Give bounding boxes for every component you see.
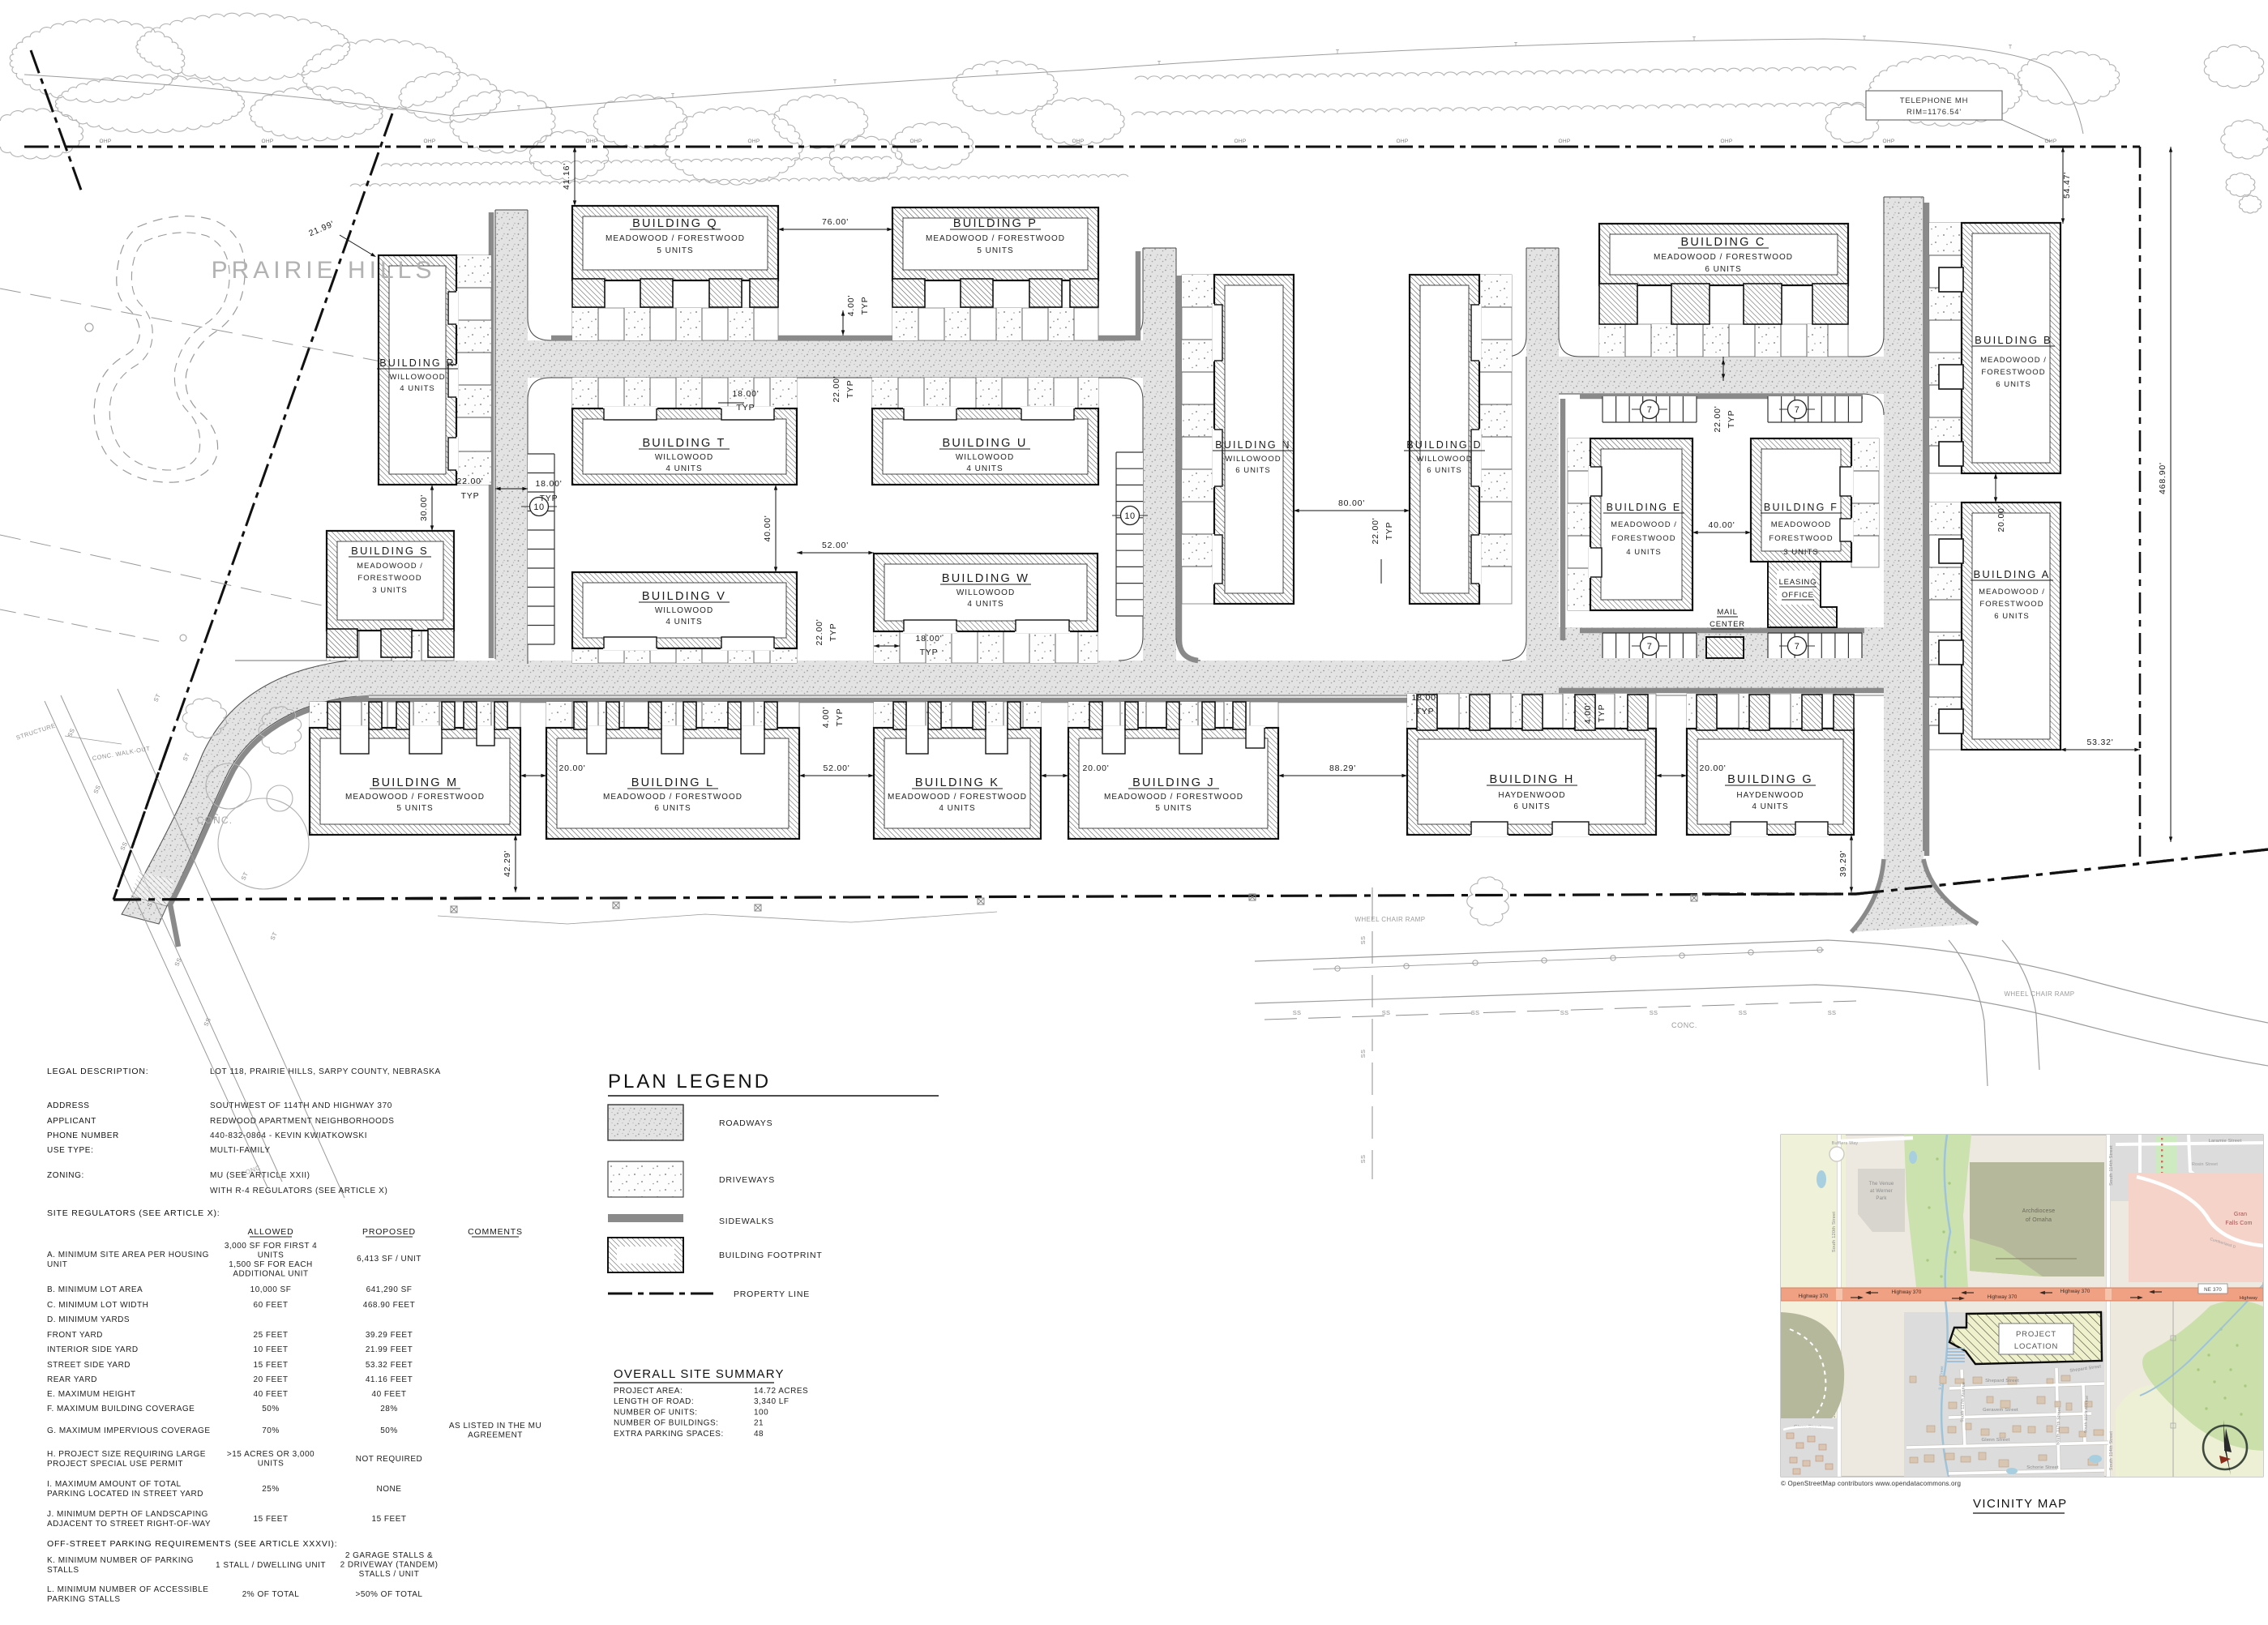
svg-text:PROJECT SPECIAL USE PERMIT: PROJECT SPECIAL USE PERMIT — [47, 1460, 183, 1469]
svg-text:30.00': 30.00' — [419, 494, 429, 521]
svg-text:PARKING STALLS: PARKING STALLS — [47, 1595, 121, 1604]
svg-text:PROPOSED: PROPOSED — [362, 1227, 416, 1237]
svg-text:22.00': 22.00' — [456, 477, 483, 486]
svg-text:39.29 FEET: 39.29 FEET — [366, 1331, 413, 1340]
svg-text:T: T — [517, 105, 521, 111]
svg-text:T: T — [1158, 61, 1162, 66]
svg-text:10: 10 — [533, 502, 544, 512]
svg-text:FORESTWOOD: FORESTWOOD — [1979, 600, 2043, 609]
svg-text:PHONE NUMBER: PHONE NUMBER — [47, 1131, 119, 1140]
svg-text:DRIVEWAYS: DRIVEWAYS — [719, 1175, 775, 1185]
svg-text:BUILDING W: BUILDING W — [942, 572, 1029, 585]
svg-text:BUILDING E: BUILDING E — [1607, 502, 1682, 513]
svg-text:88.29': 88.29' — [1329, 763, 1356, 773]
svg-text:OHP: OHP — [100, 139, 112, 144]
svg-text:18.00': 18.00' — [535, 479, 562, 489]
svg-text:4.00': 4.00' — [821, 707, 831, 728]
svg-text:Highway 370: Highway 370 — [1799, 1294, 1829, 1299]
svg-text:10 FEET: 10 FEET — [254, 1345, 289, 1354]
svg-text:3 UNITS: 3 UNITS — [1783, 548, 1818, 557]
svg-text:WILLOWOOD: WILLOWOOD — [956, 588, 1015, 597]
svg-text:STALLS: STALLS — [47, 1566, 79, 1575]
svg-text:SOUTHWEST OF 114TH AND HIGHWAY: SOUTHWEST OF 114TH AND HIGHWAY 370 — [210, 1101, 392, 1110]
svg-text:BUILDING K: BUILDING K — [915, 776, 999, 789]
svg-text:MEADOWOOD / FORESTWOOD: MEADOWOOD / FORESTWOOD — [926, 234, 1065, 243]
svg-text:25%: 25% — [262, 1485, 280, 1494]
svg-text:5 UNITS: 5 UNITS — [977, 246, 1013, 255]
svg-text:22.00': 22.00' — [1713, 405, 1722, 432]
svg-text:MEADOWOOD / FORESTWOOD: MEADOWOOD / FORESTWOOD — [345, 793, 485, 802]
svg-text:TYP: TYP — [835, 708, 845, 727]
svg-text:7: 7 — [1647, 405, 1653, 415]
svg-text:BUILDING L: BUILDING L — [631, 776, 715, 789]
svg-text:MEADOWOOD / FORESTWOOD: MEADOWOOD / FORESTWOOD — [606, 234, 745, 243]
svg-text:South 114th Street: South 114th Street — [2109, 1431, 2114, 1470]
svg-text:BUILDING N: BUILDING N — [1215, 439, 1291, 451]
svg-text:REDWOOD APARTMENT NEIGHBORHOOD: REDWOOD APARTMENT NEIGHBORHOODS — [210, 1117, 395, 1126]
svg-text:20.00': 20.00' — [1996, 505, 2006, 532]
svg-text:Glenn Street: Glenn Street — [1982, 1438, 2010, 1443]
svg-text:K. MINIMUM NUMBER OF PARKING: K. MINIMUM NUMBER OF PARKING — [47, 1556, 194, 1565]
svg-text:100: 100 — [754, 1408, 768, 1417]
svg-text:15 FEET: 15 FEET — [372, 1515, 407, 1524]
svg-text:20.00': 20.00' — [1082, 763, 1109, 773]
svg-text:EXTRA PARKING SPACES:: EXTRA PARKING SPACES: — [614, 1430, 724, 1439]
svg-text:HAYDENWOOD: HAYDENWOOD — [1498, 791, 1565, 800]
svg-text:468.90 FEET: 468.90 FEET — [363, 1301, 415, 1310]
svg-text:ALLOWED: ALLOWED — [248, 1227, 294, 1237]
svg-text:MEADOWOOD /: MEADOWOOD / — [1979, 588, 2045, 597]
svg-text:6 UNITS: 6 UNITS — [1513, 802, 1550, 811]
svg-text:T: T — [995, 71, 999, 76]
svg-text:BUILDING F: BUILDING F — [1764, 502, 1838, 513]
svg-text:Shepard Street: Shepard Street — [1985, 1379, 2019, 1383]
svg-text:SS: SS — [1828, 1009, 1837, 1016]
svg-text:OHP: OHP — [1397, 139, 1409, 144]
svg-text:BUILDING P: BUILDING P — [953, 217, 1038, 230]
svg-text:41.16 FEET: 41.16 FEET — [366, 1375, 413, 1384]
svg-text:LEGAL DESCRIPTION:: LEGAL DESCRIPTION: — [47, 1067, 148, 1076]
svg-text:OHP: OHP — [1883, 139, 1895, 144]
svg-text:SS: SS — [1471, 1009, 1480, 1016]
svg-text:WILLOWOOD: WILLOWOOD — [1416, 455, 1472, 464]
svg-text:UNIT: UNIT — [47, 1260, 67, 1269]
svg-text:© OpenStreetMap contributors w: © OpenStreetMap contributors www.opendat… — [1781, 1480, 1961, 1487]
svg-text:NONE: NONE — [377, 1485, 402, 1494]
svg-text:BUILDING Q: BUILDING Q — [632, 217, 718, 230]
svg-text:Archdiocese: Archdiocese — [2022, 1208, 2056, 1214]
svg-text:ZONING:: ZONING: — [47, 1171, 84, 1180]
svg-text:TYP: TYP — [1727, 410, 1736, 429]
svg-text:4 UNITS: 4 UNITS — [665, 618, 702, 626]
svg-text:CONC.: CONC. — [1671, 1021, 1697, 1029]
svg-text:10: 10 — [1124, 511, 1135, 521]
svg-text:COMMENTS: COMMENTS — [468, 1227, 523, 1237]
svg-text:440-832-0864 - KEVIN KWIATKOWS: 440-832-0864 - KEVIN KWIATKOWSKI — [210, 1131, 367, 1140]
svg-text:T: T — [1336, 49, 1340, 55]
svg-text:28%: 28% — [380, 1405, 398, 1413]
svg-text:ADDRESS: ADDRESS — [47, 1101, 90, 1110]
svg-text:T: T — [671, 93, 675, 99]
svg-text:TYP: TYP — [540, 494, 558, 503]
svg-text:Bufflers Way: Bufflers Way — [1832, 1141, 1859, 1146]
svg-text:MEADOWOOD / FORESTWOOD: MEADOWOOD / FORESTWOOD — [1104, 793, 1243, 802]
svg-text:40 FEET: 40 FEET — [254, 1390, 289, 1399]
svg-text:MEADOWOOD /: MEADOWOOD / — [1980, 356, 2047, 365]
svg-text:40.00': 40.00' — [763, 515, 772, 541]
svg-text:42.29': 42.29' — [503, 850, 512, 877]
svg-text:OHP: OHP — [910, 139, 922, 144]
svg-text:AGREEMENT: AGREEMENT — [468, 1431, 523, 1440]
svg-text:BUILDING G: BUILDING G — [1727, 773, 1813, 786]
svg-text:TYP: TYP — [860, 297, 870, 315]
svg-text:WILLOWOOD: WILLOWOOD — [655, 453, 713, 462]
svg-text:20 FEET: 20 FEET — [254, 1375, 289, 1384]
svg-text:HAYDENWOOD: HAYDENWOOD — [1736, 791, 1804, 800]
svg-text:TYP: TYP — [920, 648, 939, 657]
svg-text:Park: Park — [1876, 1196, 1887, 1201]
svg-text:WITH R-4 REGULATORS (SEE ARTIC: WITH R-4 REGULATORS (SEE ARTICLE X) — [210, 1187, 387, 1195]
svg-text:UNITS: UNITS — [258, 1460, 285, 1469]
svg-text:6 UNITS: 6 UNITS — [1427, 466, 1461, 475]
svg-text:H. PROJECT SIZE REQUIRING LARG: H. PROJECT SIZE REQUIRING LARGE — [47, 1450, 206, 1459]
svg-text:MULTI-FAMILY: MULTI-FAMILY — [210, 1146, 271, 1155]
svg-text:FORESTWOOD: FORESTWOOD — [1611, 534, 1675, 543]
svg-text:OVERALL SITE SUMMARY: OVERALL SITE SUMMARY — [614, 1367, 785, 1381]
svg-text:NUMBER OF UNITS:: NUMBER OF UNITS: — [614, 1408, 698, 1417]
svg-text:FORESTWOOD: FORESTWOOD — [1769, 534, 1833, 543]
svg-text:TYP: TYP — [1597, 704, 1607, 723]
svg-text:6 UNITS: 6 UNITS — [654, 804, 691, 813]
svg-text:A. MINIMUM SITE AREA PER HOUSI: A. MINIMUM SITE AREA PER HOUSING — [47, 1251, 209, 1259]
svg-text:Schorie Street: Schorie Street — [2026, 1465, 2059, 1470]
svg-text:1,500 SF FOR EACH: 1,500 SF FOR EACH — [229, 1260, 313, 1269]
svg-text:D. MINIMUM YARDS: D. MINIMUM YARDS — [47, 1315, 130, 1324]
svg-text:STREET SIDE YARD: STREET SIDE YARD — [47, 1361, 131, 1370]
svg-text:4 UNITS: 4 UNITS — [1626, 548, 1661, 557]
svg-text:OHP: OHP — [2045, 139, 2057, 144]
svg-text:3,340 LF: 3,340 LF — [754, 1397, 789, 1406]
svg-text:6 UNITS: 6 UNITS — [1235, 466, 1270, 475]
svg-text:FORESTWOOD: FORESTWOOD — [1981, 368, 2045, 377]
svg-text:SS: SS — [1293, 1009, 1302, 1016]
svg-text:18.00': 18.00' — [732, 389, 759, 399]
svg-text:SS: SS — [1359, 1050, 1367, 1058]
svg-text:PLAN LEGEND: PLAN LEGEND — [608, 1071, 771, 1093]
svg-text:FRONT YARD: FRONT YARD — [47, 1331, 103, 1340]
svg-text:LOCATION: LOCATION — [2014, 1342, 2058, 1351]
svg-text:18.00': 18.00' — [915, 634, 942, 644]
svg-text:22.00': 22.00' — [1371, 517, 1380, 544]
svg-text:10,000 SF: 10,000 SF — [250, 1285, 292, 1294]
svg-text:CENTER: CENTER — [1710, 620, 1745, 629]
svg-text:20.00': 20.00' — [558, 763, 585, 773]
svg-text:OHP: OHP — [1721, 139, 1733, 144]
svg-text:4 UNITS: 4 UNITS — [665, 464, 702, 473]
svg-text:BUILDING A: BUILDING A — [1974, 568, 2051, 580]
svg-text:4 UNITS: 4 UNITS — [967, 600, 1003, 609]
svg-text:Highway: Highway — [2240, 1296, 2257, 1301]
svg-text:22.00': 22.00' — [832, 375, 841, 402]
svg-text:T: T — [1514, 42, 1518, 48]
svg-text:5 UNITS: 5 UNITS — [1155, 804, 1192, 813]
svg-text:Falls Com: Falls Com — [2225, 1221, 2252, 1226]
svg-text:53.32': 53.32' — [2086, 738, 2113, 747]
svg-text:48: 48 — [754, 1430, 764, 1439]
svg-text:Geravem Street: Geravem Street — [1983, 1408, 2018, 1413]
svg-text:G. MAXIMUM IMPERVIOUS COVERAGE: G. MAXIMUM IMPERVIOUS COVERAGE — [47, 1426, 211, 1435]
svg-text:BUILDING H: BUILDING H — [1490, 773, 1575, 786]
svg-text:6 UNITS: 6 UNITS — [1994, 612, 2029, 621]
svg-text:LENGTH OF ROAD:: LENGTH OF ROAD: — [614, 1397, 694, 1406]
svg-text:PROPERTY LINE: PROPERTY LINE — [734, 1289, 810, 1299]
svg-text:T: T — [1863, 36, 1867, 41]
svg-text:MEADOWOOD / FORESTWOOD: MEADOWOOD / FORESTWOOD — [603, 793, 742, 802]
svg-text:20.00': 20.00' — [1699, 763, 1726, 773]
svg-text:T: T — [1692, 36, 1697, 42]
svg-text:SS: SS — [1650, 1009, 1658, 1016]
svg-text:E. MAXIMUM HEIGHT: E. MAXIMUM HEIGHT — [47, 1390, 136, 1399]
svg-text:Highway 370: Highway 370 — [1892, 1289, 1922, 1295]
svg-text:50%: 50% — [380, 1426, 398, 1435]
svg-text:NUMBER OF BUILDINGS:: NUMBER OF BUILDINGS: — [614, 1419, 718, 1428]
svg-text:4 UNITS: 4 UNITS — [1752, 802, 1788, 811]
svg-text:7: 7 — [1795, 405, 1800, 415]
svg-text:PARKING LOCATED IN STREET YARD: PARKING LOCATED IN STREET YARD — [47, 1490, 203, 1499]
svg-text:40 FEET: 40 FEET — [372, 1390, 407, 1399]
svg-text:NOT REQUIRED: NOT REQUIRED — [356, 1455, 423, 1464]
svg-text:BUILDING V: BUILDING V — [642, 590, 726, 603]
svg-text:OFFICE: OFFICE — [1782, 591, 1814, 600]
svg-text:BUILDING U: BUILDING U — [943, 437, 1028, 450]
svg-text:MEADOWOOD /: MEADOWOOD / — [357, 562, 423, 571]
svg-text:AS LISTED IN THE MU: AS LISTED IN THE MU — [449, 1422, 541, 1430]
svg-text:7: 7 — [1647, 642, 1653, 652]
svg-text:ROADWAYS: ROADWAYS — [719, 1118, 773, 1128]
svg-text:WHEEL CHAIR RAMP: WHEEL CHAIR RAMP — [1354, 916, 1425, 923]
svg-text:BUILDING T: BUILDING T — [642, 437, 725, 450]
svg-text:WHEEL CHAIR RAMP: WHEEL CHAIR RAMP — [2004, 990, 2074, 998]
svg-text:Gran: Gran — [2234, 1212, 2247, 1217]
svg-text:80.00': 80.00' — [1338, 498, 1365, 508]
svg-text:L. MINIMUM NUMBER OF ACCESSIBL: L. MINIMUM NUMBER OF ACCESSIBLE — [47, 1585, 208, 1594]
svg-text:4 UNITS: 4 UNITS — [939, 804, 975, 813]
svg-text:6 UNITS: 6 UNITS — [1996, 380, 2031, 389]
svg-text:OHP: OHP — [1559, 139, 1571, 144]
svg-text:B. MINIMUM LOT AREA: B. MINIMUM LOT AREA — [47, 1285, 143, 1294]
svg-text:WILLOWOOD: WILLOWOOD — [1225, 455, 1281, 464]
svg-text:BUILDING C: BUILDING C — [1681, 236, 1766, 249]
svg-text:Highway 370: Highway 370 — [2060, 1289, 2090, 1294]
svg-text:INTERIOR SIDE YARD: INTERIOR SIDE YARD — [47, 1345, 139, 1354]
svg-text:ADDITIONAL UNIT: ADDITIONAL UNIT — [233, 1270, 308, 1279]
svg-text:at Werner: at Werner — [1870, 1189, 1893, 1194]
svg-text:52.00': 52.00' — [823, 763, 849, 773]
svg-text:>50% OF TOTAL: >50% OF TOTAL — [356, 1590, 423, 1599]
svg-text:of Omaha: of Omaha — [2026, 1217, 2052, 1223]
svg-text:TYP: TYP — [828, 623, 838, 642]
svg-text:PRAIRIE HILLS: PRAIRIE HILLS — [212, 257, 436, 284]
svg-text:OHP: OHP — [748, 139, 760, 144]
svg-text:76.00': 76.00' — [822, 217, 849, 227]
svg-text:Laramie Street: Laramie Street — [2209, 1139, 2242, 1144]
svg-text:WILLOWOOD: WILLOWOOD — [389, 373, 445, 382]
svg-text:VICINITY MAP: VICINITY MAP — [1973, 1497, 2068, 1511]
svg-text:NE 370: NE 370 — [2204, 1287, 2222, 1293]
svg-text:3 UNITS: 3 UNITS — [372, 586, 407, 595]
svg-text:T: T — [2009, 45, 2013, 50]
svg-text:APPLICANT: APPLICANT — [47, 1117, 96, 1126]
svg-text:BUILDING R: BUILDING R — [379, 357, 456, 369]
svg-text:14.72 ACRES: 14.72 ACRES — [754, 1387, 808, 1396]
svg-text:BUILDING D: BUILDING D — [1406, 439, 1483, 451]
svg-text:21.99 FEET: 21.99 FEET — [366, 1345, 413, 1354]
svg-text:TYP: TYP — [737, 403, 755, 413]
svg-text:40.00': 40.00' — [1708, 520, 1735, 530]
svg-text:OHP: OHP — [262, 139, 274, 144]
svg-text:3,000 SF FOR FIRST 4: 3,000 SF FOR FIRST 4 — [225, 1242, 317, 1251]
svg-text:STALLS / UNIT: STALLS / UNIT — [359, 1570, 420, 1579]
svg-text:ADJACENT TO STREET RIGHT-OF-WA: ADJACENT TO STREET RIGHT-OF-WAY — [47, 1520, 211, 1529]
svg-text:5 UNITS: 5 UNITS — [396, 804, 433, 813]
svg-text:2 GARAGE STALLS &: 2 GARAGE STALLS & — [345, 1551, 433, 1560]
svg-text:TYP: TYP — [845, 380, 855, 399]
svg-text:Highway 370: Highway 370 — [1988, 1294, 2018, 1300]
svg-text:54.47': 54.47' — [2062, 172, 2072, 199]
svg-text:SITE REGULATORS (SEE ARTICLE X: SITE REGULATORS (SEE ARTICLE X): — [47, 1208, 220, 1218]
svg-text:2 DRIVEWAY (TANDEM): 2 DRIVEWAY (TANDEM) — [340, 1561, 439, 1570]
svg-text:BUILDING S: BUILDING S — [351, 545, 429, 557]
svg-text:SS: SS — [1359, 1155, 1367, 1164]
svg-text:4 UNITS: 4 UNITS — [966, 464, 1003, 473]
svg-text:50%: 50% — [262, 1405, 280, 1413]
svg-text:SIDEWALKS: SIDEWALKS — [719, 1217, 774, 1226]
svg-text:6 UNITS: 6 UNITS — [1705, 265, 1741, 274]
svg-text:53.32 FEET: 53.32 FEET — [366, 1361, 413, 1370]
svg-text:South 120th Street: South 120th Street — [1832, 1212, 1837, 1252]
svg-text:LOT 118, PRAIRIE HILLS, SARPY: LOT 118, PRAIRIE HILLS, SARPY COUNTY, NE… — [210, 1067, 441, 1076]
svg-text:TYP: TYP — [461, 491, 480, 501]
svg-text:21: 21 — [754, 1419, 764, 1428]
svg-text:MU (SEE ARTICLE XXII): MU (SEE ARTICLE XXII) — [210, 1171, 310, 1180]
svg-text:MAIL: MAIL — [1717, 608, 1737, 617]
svg-text:5 UNITS: 5 UNITS — [657, 246, 693, 255]
svg-text:C. MINIMUM LOT WIDTH: C. MINIMUM LOT WIDTH — [47, 1301, 148, 1310]
svg-text:MEADOWOOD: MEADOWOOD — [1771, 520, 1831, 529]
svg-text:PROJECT AREA:: PROJECT AREA: — [614, 1387, 683, 1396]
svg-text:OHP: OHP — [1235, 139, 1247, 144]
svg-text:BUILDING FOOTPRINT: BUILDING FOOTPRINT — [719, 1251, 823, 1260]
svg-text:SS: SS — [1359, 936, 1367, 945]
svg-text:15 FEET: 15 FEET — [254, 1361, 289, 1370]
svg-text:60 FEET: 60 FEET — [254, 1301, 289, 1310]
svg-text:FORESTWOOD: FORESTWOOD — [357, 574, 422, 583]
svg-text:52.00': 52.00' — [822, 541, 849, 550]
svg-text:OHP: OHP — [424, 139, 436, 144]
svg-text:MEADOWOOD / FORESTWOOD: MEADOWOOD / FORESTWOOD — [1654, 253, 1793, 262]
svg-text:15 FEET: 15 FEET — [254, 1515, 289, 1524]
svg-text:REAR YARD: REAR YARD — [47, 1375, 97, 1384]
svg-text:MEADOWOOD /: MEADOWOOD / — [1611, 520, 1677, 529]
svg-text:4.00': 4.00' — [846, 295, 856, 316]
svg-text:18.00': 18.00' — [1411, 693, 1438, 703]
svg-text:BUILDING B: BUILDING B — [1975, 334, 2052, 346]
svg-text:OHP: OHP — [586, 139, 598, 144]
svg-text:LEASING: LEASING — [1779, 578, 1817, 587]
svg-text:70%: 70% — [262, 1426, 280, 1435]
svg-text:22.00': 22.00' — [815, 618, 824, 645]
svg-text:6,413 SF / UNIT: 6,413 SF / UNIT — [357, 1255, 422, 1264]
svg-text:F. MAXIMUM BUILDING COVERAGE: F. MAXIMUM BUILDING COVERAGE — [47, 1405, 195, 1413]
svg-text:BUILDING M: BUILDING M — [372, 776, 459, 789]
svg-text:WILLOWOOD: WILLOWOOD — [956, 453, 1014, 462]
svg-text:J. MINIMUM DEPTH OF LANDSCAPIN: J. MINIMUM DEPTH OF LANDSCAPING — [47, 1510, 208, 1519]
svg-text:SS: SS — [1739, 1009, 1748, 1016]
svg-text:The Venue: The Venue — [1869, 1182, 1894, 1187]
svg-text:7: 7 — [1795, 642, 1800, 652]
svg-text:UNITS: UNITS — [258, 1251, 285, 1260]
svg-text:SS: SS — [1382, 1009, 1391, 1016]
svg-text:>15 ACRES OR 3,000: >15 ACRES OR 3,000 — [227, 1450, 315, 1459]
svg-text:OFF-STREET PARKING REQUIREMENT: OFF-STREET PARKING REQUIREMENTS (SEE ART… — [47, 1539, 337, 1549]
svg-text:641,290 SF: 641,290 SF — [366, 1285, 413, 1294]
svg-text:TYP: TYP — [1384, 522, 1394, 541]
svg-text:MEADOWOOD / FORESTWOOD: MEADOWOOD / FORESTWOOD — [888, 793, 1027, 802]
svg-text:25 FEET: 25 FEET — [254, 1331, 289, 1340]
svg-text:RIM=1176.54': RIM=1176.54' — [1906, 108, 1962, 117]
svg-text:I. MAXIMUM AMOUNT OF TOTAL: I. MAXIMUM AMOUNT OF TOTAL — [47, 1480, 182, 1489]
svg-text:PROJECT: PROJECT — [2016, 1330, 2056, 1339]
svg-text:TYP: TYP — [1416, 707, 1435, 716]
svg-text:4.00': 4.00' — [1583, 703, 1593, 724]
svg-text:BUILDING J: BUILDING J — [1132, 776, 1215, 789]
svg-text:T: T — [833, 79, 837, 85]
svg-text:468.90': 468.90' — [2158, 462, 2167, 494]
svg-text:2% OF TOTAL: 2% OF TOTAL — [242, 1590, 300, 1599]
svg-text:4 UNITS: 4 UNITS — [400, 384, 434, 393]
svg-text:41.16': 41.16' — [562, 163, 571, 190]
svg-text:OHP: OHP — [1072, 139, 1085, 144]
svg-text:USE TYPE:: USE TYPE: — [47, 1146, 93, 1155]
svg-text:SS: SS — [1560, 1009, 1569, 1016]
svg-text:39.29': 39.29' — [1838, 850, 1848, 877]
svg-text:WILLOWOOD: WILLOWOOD — [655, 606, 713, 615]
svg-text:TELEPHONE MH: TELEPHONE MH — [1900, 96, 1969, 105]
svg-text:1 STALL / DWELLING UNIT: 1 STALL / DWELLING UNIT — [216, 1561, 326, 1570]
svg-text:South 114th Street: South 114th Street — [2109, 1145, 2114, 1186]
svg-text:Rosin Street: Rosin Street — [2192, 1162, 2218, 1167]
